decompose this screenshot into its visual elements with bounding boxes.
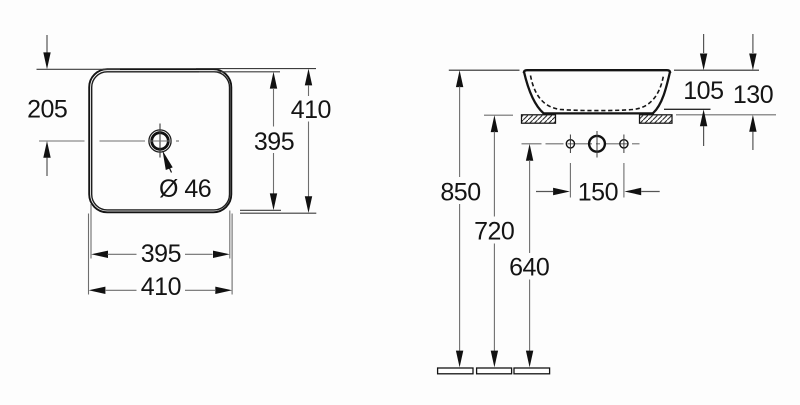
svg-text:720: 720 (474, 218, 514, 246)
svg-text:395: 395 (141, 240, 181, 268)
svg-text:640: 640 (509, 254, 549, 282)
svg-text:395: 395 (254, 128, 294, 156)
svg-text:150: 150 (578, 178, 618, 206)
svg-text:105: 105 (683, 77, 723, 105)
svg-text:130: 130 (733, 81, 773, 109)
svg-text:Ø 46: Ø 46 (159, 175, 211, 203)
svg-text:410: 410 (291, 96, 331, 124)
svg-text:850: 850 (440, 178, 480, 206)
svg-text:205: 205 (27, 95, 67, 123)
svg-text:410: 410 (141, 273, 181, 301)
